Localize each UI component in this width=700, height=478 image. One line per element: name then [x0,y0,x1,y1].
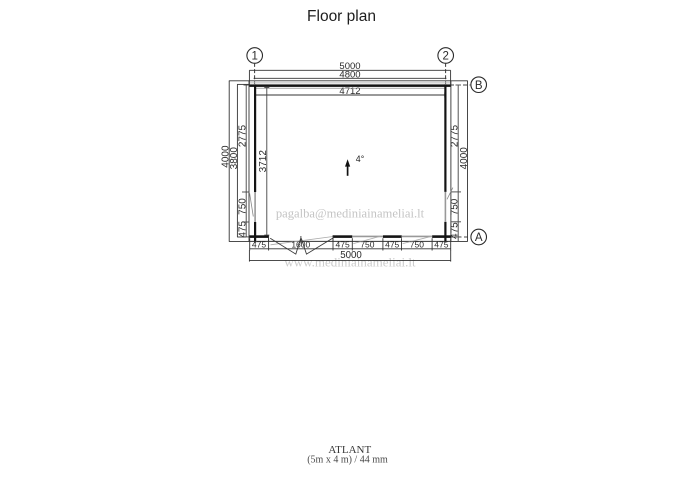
svg-text:475: 475 [434,240,448,250]
svg-text:750: 750 [410,240,424,250]
svg-text:A: A [475,232,483,244]
svg-text:Floor plan: Floor plan [307,8,376,25]
svg-text:4712: 4712 [339,86,360,97]
svg-text:4800: 4800 [339,69,360,80]
svg-text:475: 475 [385,240,399,250]
svg-text:750: 750 [360,240,374,250]
svg-text:3712: 3712 [258,150,269,173]
svg-text:475: 475 [450,222,461,239]
svg-text:2775: 2775 [450,124,461,147]
svg-text:750: 750 [238,198,249,215]
svg-text:4000: 4000 [459,147,470,170]
svg-text:(5m x 4 m) / 44 mm: (5m x 4 m) / 44 mm [307,455,388,466]
svg-text:2: 2 [442,51,448,63]
svg-text:B: B [475,80,483,92]
svg-text:3800: 3800 [229,147,240,170]
svg-text:4°: 4° [356,154,364,164]
svg-text:475: 475 [336,240,350,250]
svg-text:pagalba@mediniainameliai.lt: pagalba@mediniainameliai.lt [276,207,425,221]
svg-text:2775: 2775 [238,124,249,147]
svg-text:5000: 5000 [340,250,362,261]
svg-text:750: 750 [450,198,461,215]
svg-text:1600: 1600 [291,240,310,250]
svg-text:475: 475 [252,240,266,250]
svg-text:475: 475 [238,221,249,238]
svg-text:1: 1 [251,51,257,63]
